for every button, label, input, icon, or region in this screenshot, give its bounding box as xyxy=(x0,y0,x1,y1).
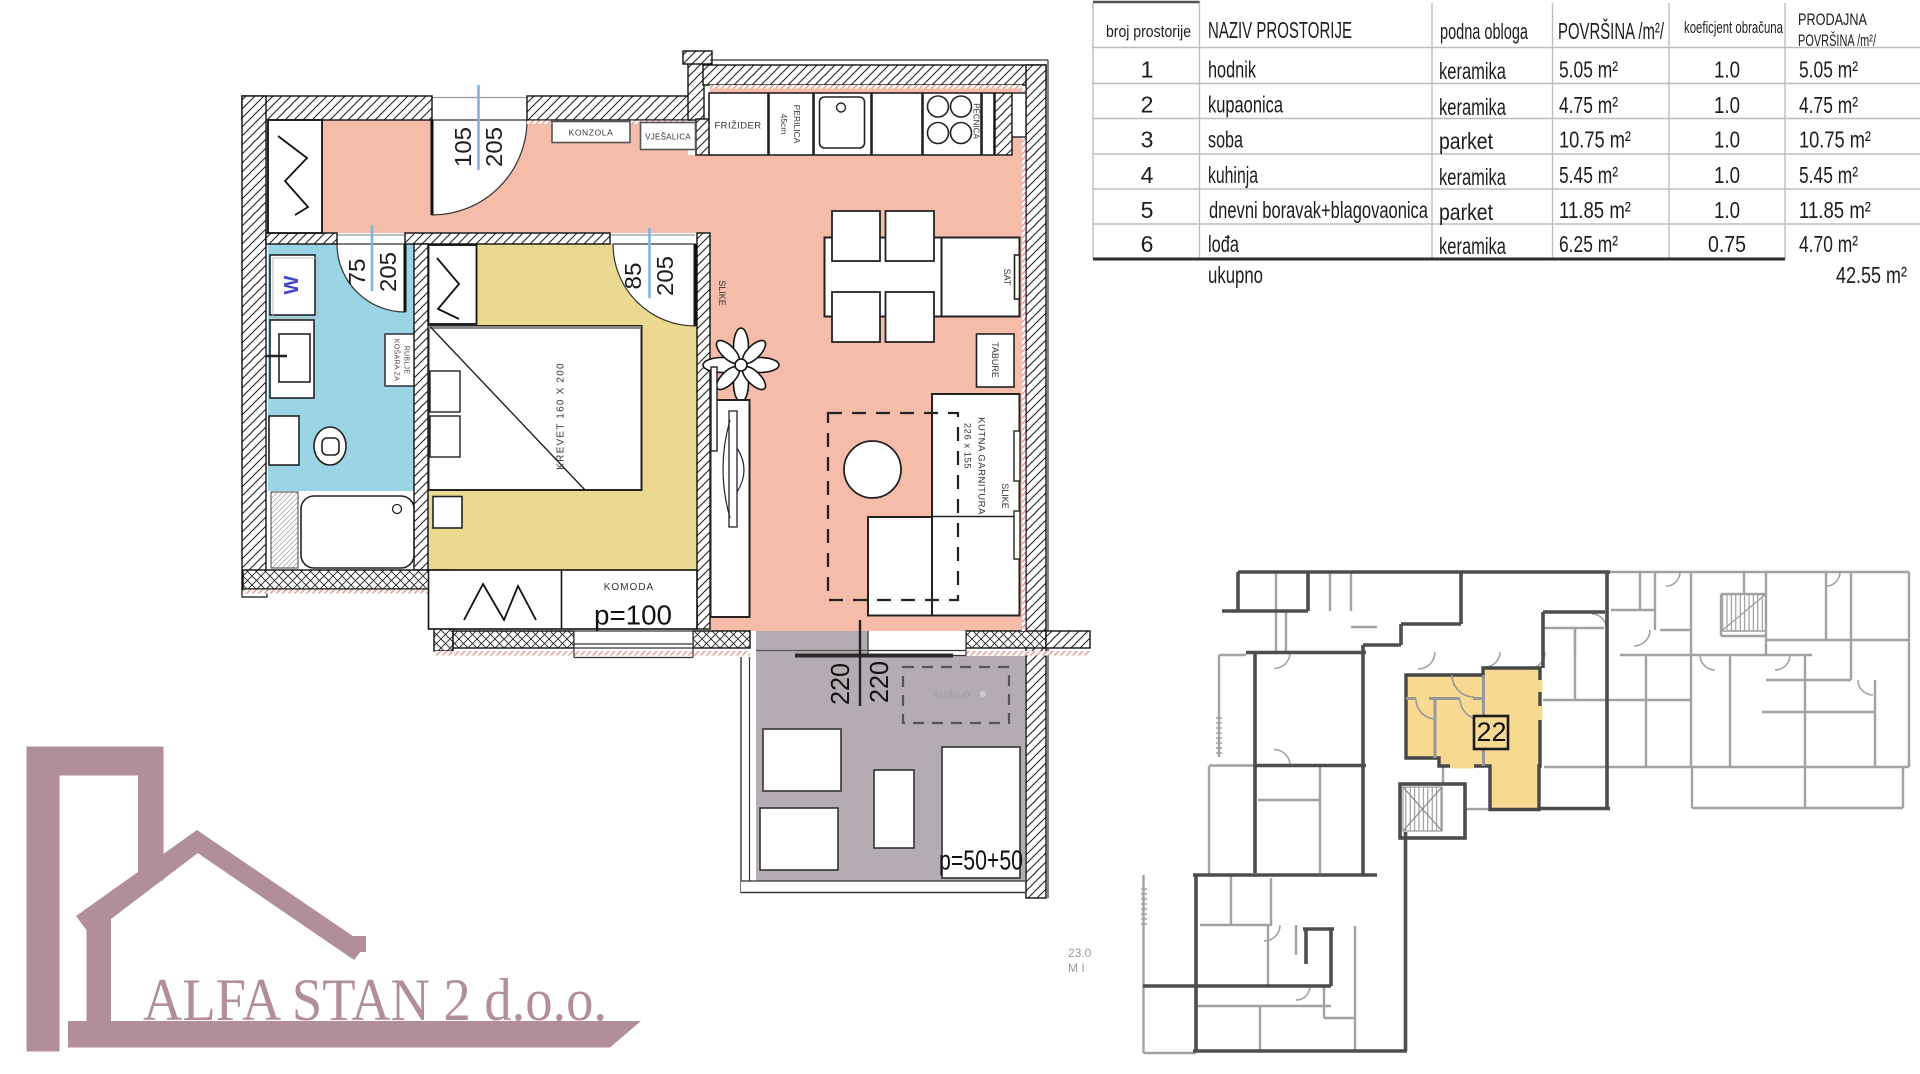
svg-text:6.25 m²: 6.25 m² xyxy=(1559,231,1618,257)
svg-text:hodnik: hodnik xyxy=(1208,57,1256,83)
svg-text:KOMODA: KOMODA xyxy=(604,582,654,593)
svg-text:keramika: keramika xyxy=(1439,164,1506,190)
svg-text:105: 105 xyxy=(450,127,476,167)
svg-text:RUBLJE: RUBLJE xyxy=(403,346,410,375)
svg-text:M I: M I xyxy=(1068,961,1085,975)
svg-text:1.0: 1.0 xyxy=(1714,57,1740,83)
svg-text:42.55 m²: 42.55 m² xyxy=(1836,262,1907,288)
svg-text:226 x 155: 226 x 155 xyxy=(962,423,973,469)
svg-text:205: 205 xyxy=(481,127,507,167)
svg-text:5.05 m²: 5.05 m² xyxy=(1799,57,1858,83)
svg-text:KOŠARA ZA: KOŠARA ZA xyxy=(393,339,402,381)
svg-text:205: 205 xyxy=(375,252,401,292)
svg-text:SAT: SAT xyxy=(1002,269,1012,286)
svg-text:lođa: lođa xyxy=(1208,231,1239,257)
svg-text:75: 75 xyxy=(344,259,370,286)
svg-text:PRODAJNA: PRODAJNA xyxy=(1798,11,1867,29)
svg-text:dnevni boravak+blagovaonica: dnevni boravak+blagovaonica xyxy=(1209,197,1428,223)
svg-text:1.0: 1.0 xyxy=(1714,127,1740,153)
svg-text:TABURE: TABURE xyxy=(990,342,1000,378)
svg-text:broj prostorije: broj prostorije xyxy=(1106,22,1191,41)
svg-text:1.0: 1.0 xyxy=(1714,162,1740,188)
svg-text:220: 220 xyxy=(825,663,855,705)
svg-text:keramika: keramika xyxy=(1439,94,1506,120)
svg-text:soba: soba xyxy=(1208,127,1243,153)
svg-text:POVRŠINA /m²/: POVRŠINA /m²/ xyxy=(1798,31,1876,50)
svg-text:kupaonica: kupaonica xyxy=(1208,92,1283,118)
svg-text:NAZIV PROSTORIJE: NAZIV PROSTORIJE xyxy=(1208,17,1352,43)
svg-text:kuhinja: kuhinja xyxy=(1208,162,1258,188)
svg-text:5.05 m²: 5.05 m² xyxy=(1559,57,1618,83)
svg-text:SUŠILO: SUŠILO xyxy=(933,690,970,700)
svg-text:11.85 m²: 11.85 m² xyxy=(1559,197,1631,223)
svg-text:23.0: 23.0 xyxy=(1068,946,1092,960)
svg-text:FRIŽIDER: FRIŽIDER xyxy=(714,121,761,132)
svg-text:PEĆNICA: PEĆNICA xyxy=(972,103,981,139)
svg-text:2: 2 xyxy=(1141,92,1154,118)
svg-text:parket: parket xyxy=(1439,128,1494,154)
svg-text:SLIKE: SLIKE xyxy=(1000,483,1010,509)
svg-text:0.75: 0.75 xyxy=(1708,231,1746,257)
svg-text:1.0: 1.0 xyxy=(1714,92,1740,118)
svg-text:5.45 m²: 5.45 m² xyxy=(1799,162,1858,188)
svg-text:4.75 m²: 4.75 m² xyxy=(1559,92,1618,118)
svg-text:3: 3 xyxy=(1141,127,1154,153)
svg-text:4.75 m²: 4.75 m² xyxy=(1799,92,1858,118)
svg-text:podna obloga: podna obloga xyxy=(1440,19,1529,44)
svg-text:p=50+50: p=50+50 xyxy=(939,845,1023,876)
svg-text:PERILICA: PERILICA xyxy=(792,105,802,144)
svg-text:W: W xyxy=(281,275,303,294)
svg-text:10.75 m²: 10.75 m² xyxy=(1559,127,1631,153)
svg-text:KREVET 160 X 200: KREVET 160 X 200 xyxy=(556,362,567,469)
svg-text:p=100: p=100 xyxy=(594,600,672,631)
svg-text:11.85 m²: 11.85 m² xyxy=(1799,197,1871,223)
svg-text:220: 220 xyxy=(864,661,894,703)
svg-text:1: 1 xyxy=(1141,57,1154,83)
svg-text:85: 85 xyxy=(620,263,646,290)
svg-text:keramika: keramika xyxy=(1439,58,1506,84)
svg-text:4: 4 xyxy=(1141,162,1154,188)
svg-text:KUTNA GARNITURA: KUTNA GARNITURA xyxy=(976,417,987,515)
svg-text:parket: parket xyxy=(1439,199,1494,225)
svg-text:keramika: keramika xyxy=(1439,233,1506,259)
svg-text:22: 22 xyxy=(1476,717,1506,747)
svg-text:POVRŠINA /m²/: POVRŠINA /m²/ xyxy=(1558,17,1664,44)
svg-text:VJEŠALICA: VJEŠALICA xyxy=(645,133,691,142)
svg-text:45cm: 45cm xyxy=(779,114,789,135)
svg-text:6: 6 xyxy=(1141,231,1154,257)
svg-text:ukupno: ukupno xyxy=(1208,262,1263,288)
svg-text:205: 205 xyxy=(652,256,678,296)
svg-text:10.75 m²: 10.75 m² xyxy=(1799,127,1871,153)
svg-text:4.70 m²: 4.70 m² xyxy=(1799,231,1858,257)
svg-text:5: 5 xyxy=(1141,197,1154,223)
svg-text:ALFA STAN 2 d.o.o.: ALFA STAN 2 d.o.o. xyxy=(143,967,607,1033)
svg-text:KONZOLA: KONZOLA xyxy=(569,128,614,138)
svg-text:koeficjent obračuna: koeficjent obračuna xyxy=(1684,19,1784,37)
svg-text:1.0: 1.0 xyxy=(1714,197,1740,223)
svg-text:5.45 m²: 5.45 m² xyxy=(1559,162,1618,188)
svg-text:SLIKE: SLIKE xyxy=(717,280,727,306)
